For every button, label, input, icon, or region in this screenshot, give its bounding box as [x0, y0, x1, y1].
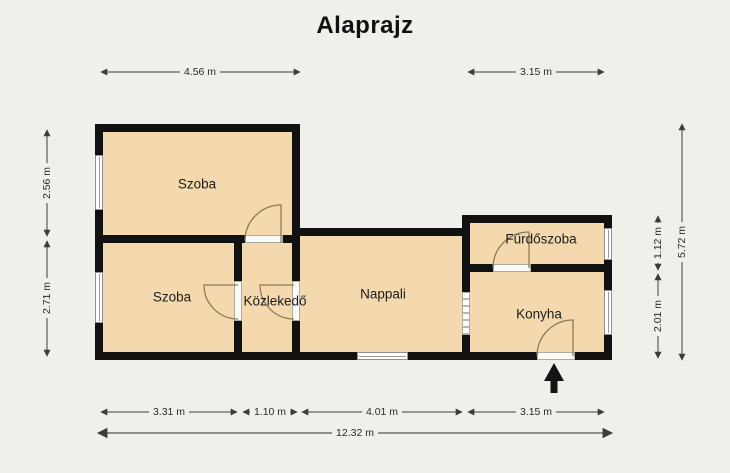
- door-swing-arc: [204, 285, 238, 319]
- dimension-label-right-bathroom: 1.12 m: [652, 223, 664, 263]
- entrance-arrow-icon: [544, 363, 564, 393]
- dimension-label-left-lower: 2.71 m: [41, 278, 53, 318]
- dimension-label-bottom-hall: 1.10 m: [250, 406, 290, 418]
- door-swing-arc: [245, 205, 281, 243]
- dimension-label-right-total: 5.72 m: [676, 222, 688, 262]
- room-label-szoba-1: Szoba: [178, 177, 216, 192]
- floor-plan: Alaprajz: [0, 0, 730, 473]
- dimension-label-left-upper: 2.56 m: [41, 163, 53, 203]
- dimension-label-right-kitchen: 2.01 m: [652, 296, 664, 336]
- dimension-label-bottom-room: 3.31 m: [149, 406, 189, 418]
- room-label-furdoszoba: Fürdőszoba: [505, 232, 576, 247]
- dimension-label-bottom-living: 4.01 m: [362, 406, 402, 418]
- dimension-label-top-left: 4.56 m: [180, 66, 220, 78]
- door-swing-arc: [537, 320, 573, 356]
- dimension-label-top-right: 3.15 m: [516, 66, 556, 78]
- room-label-konyha: Konyha: [516, 307, 562, 322]
- room-label-kozlekedo: Közlekedő: [243, 294, 306, 309]
- dimension-label-bottom-kitchen: 3.15 m: [516, 406, 556, 418]
- plan-overlay: [0, 0, 730, 473]
- dimension-label-bottom-total: 12.32 m: [332, 427, 378, 439]
- room-label-nappali: Nappali: [360, 287, 406, 302]
- room-label-szoba-2: Szoba: [153, 290, 191, 305]
